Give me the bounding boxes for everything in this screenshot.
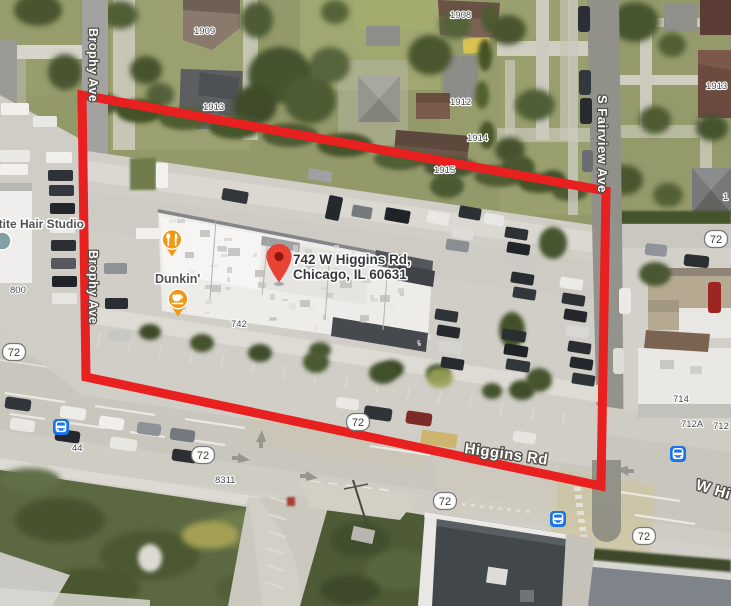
svg-text:1913: 1913 [706,81,727,92]
svg-text:1913: 1913 [203,102,224,113]
svg-text:72: 72 [710,234,722,246]
svg-text:712A: 712A [681,419,704,430]
svg-text:1: 1 [723,192,728,203]
svg-text:1908: 1908 [450,10,471,21]
svg-text:742 W Higgins Rd,: 742 W Higgins Rd, [293,252,411,267]
svg-text:1915: 1915 [434,165,455,176]
svg-text:Brophy Ave: Brophy Ave [86,250,100,324]
svg-text:1914: 1914 [467,133,488,144]
svg-text:etite Hair Studio: etite Hair Studio [0,217,84,231]
svg-text:714: 714 [673,394,689,405]
svg-text:1912: 1912 [450,97,471,108]
svg-text:72: 72 [197,450,209,462]
svg-text:Dunkin': Dunkin' [155,272,200,286]
svg-text:742: 742 [231,319,247,330]
svg-text:8311: 8311 [215,475,235,486]
svg-text:Brophy Ave: Brophy Ave [86,28,100,102]
svg-text:Chicago, IL 60631: Chicago, IL 60631 [293,267,407,282]
svg-text:800: 800 [10,285,26,296]
svg-text:72: 72 [638,531,650,543]
svg-text:72: 72 [8,347,20,359]
svg-text:712: 712 [713,421,729,432]
svg-text:S Fairview Ave: S Fairview Ave [595,95,610,193]
svg-text:1909: 1909 [194,26,215,37]
svg-text:72: 72 [439,496,451,508]
svg-text:72: 72 [352,417,364,429]
svg-text:44: 44 [72,443,83,454]
